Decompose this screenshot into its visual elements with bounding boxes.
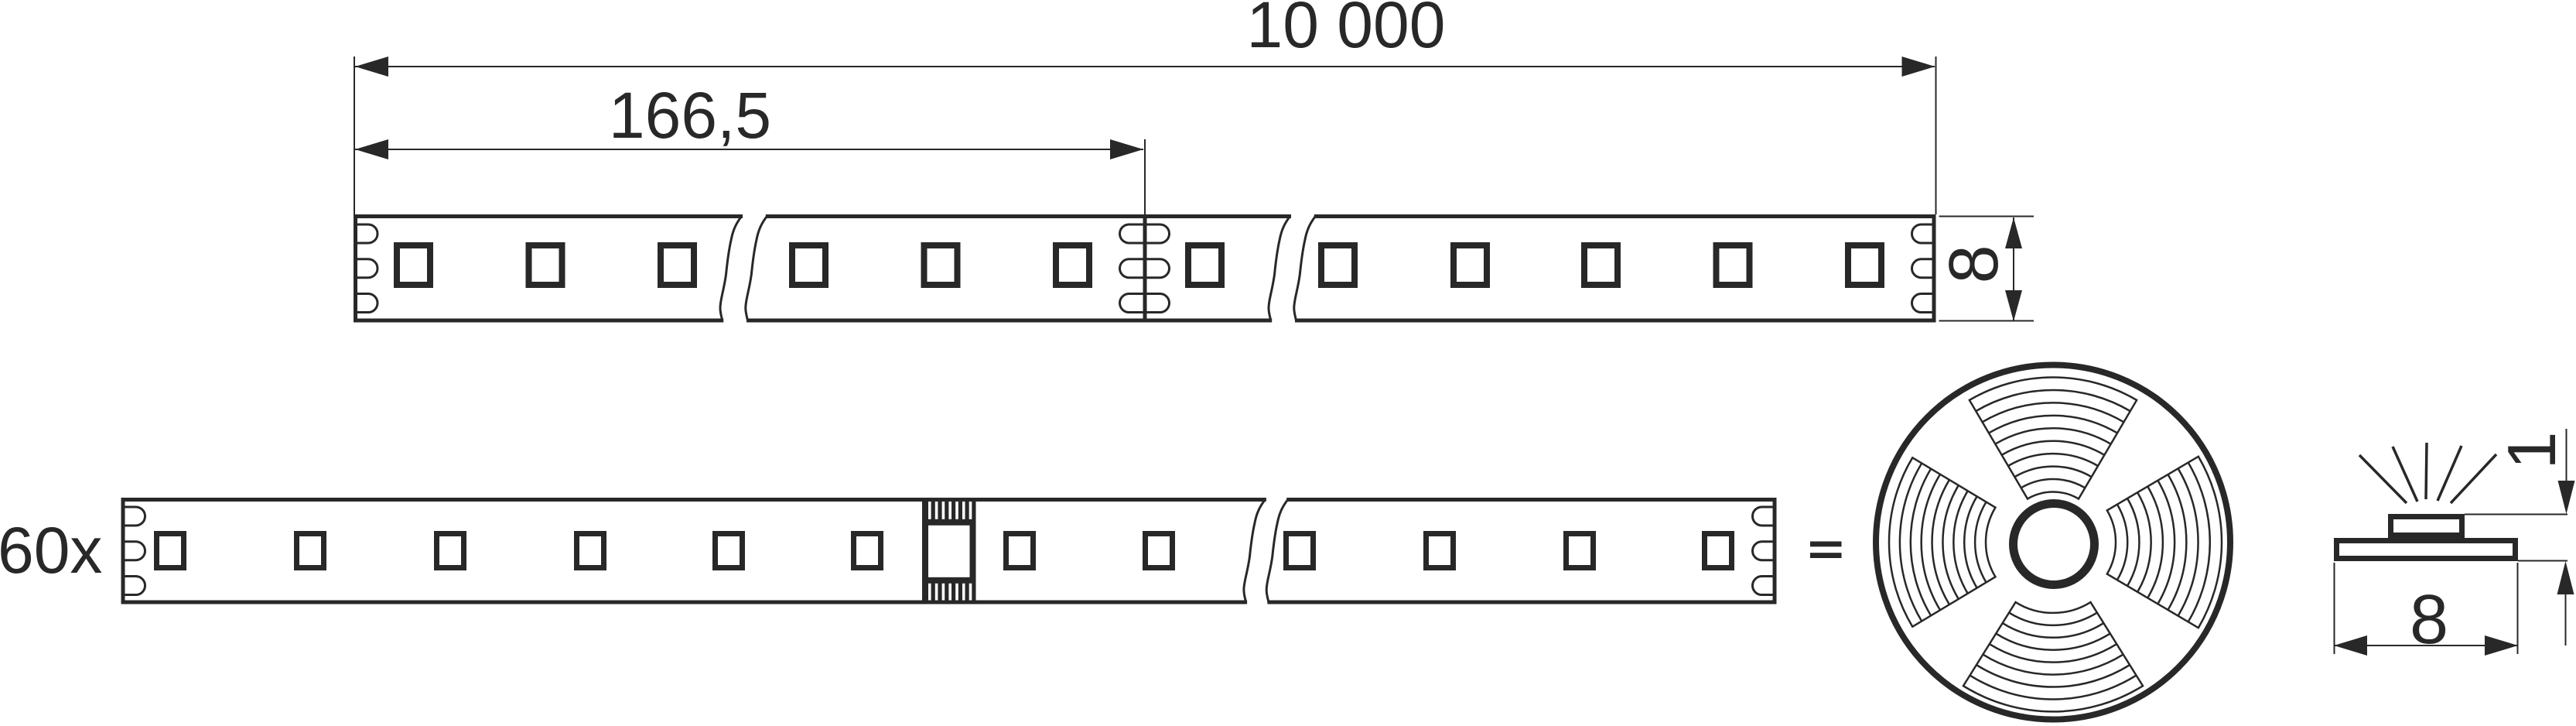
svg-text:1: 1 (2493, 432, 2570, 470)
svg-text:166,5: 166,5 (609, 79, 771, 152)
svg-text:8: 8 (2410, 581, 2448, 659)
svg-text:60x: 60x (0, 514, 102, 587)
svg-text:8: 8 (1935, 245, 2013, 283)
svg-text:10 000: 10 000 (1247, 0, 1446, 61)
